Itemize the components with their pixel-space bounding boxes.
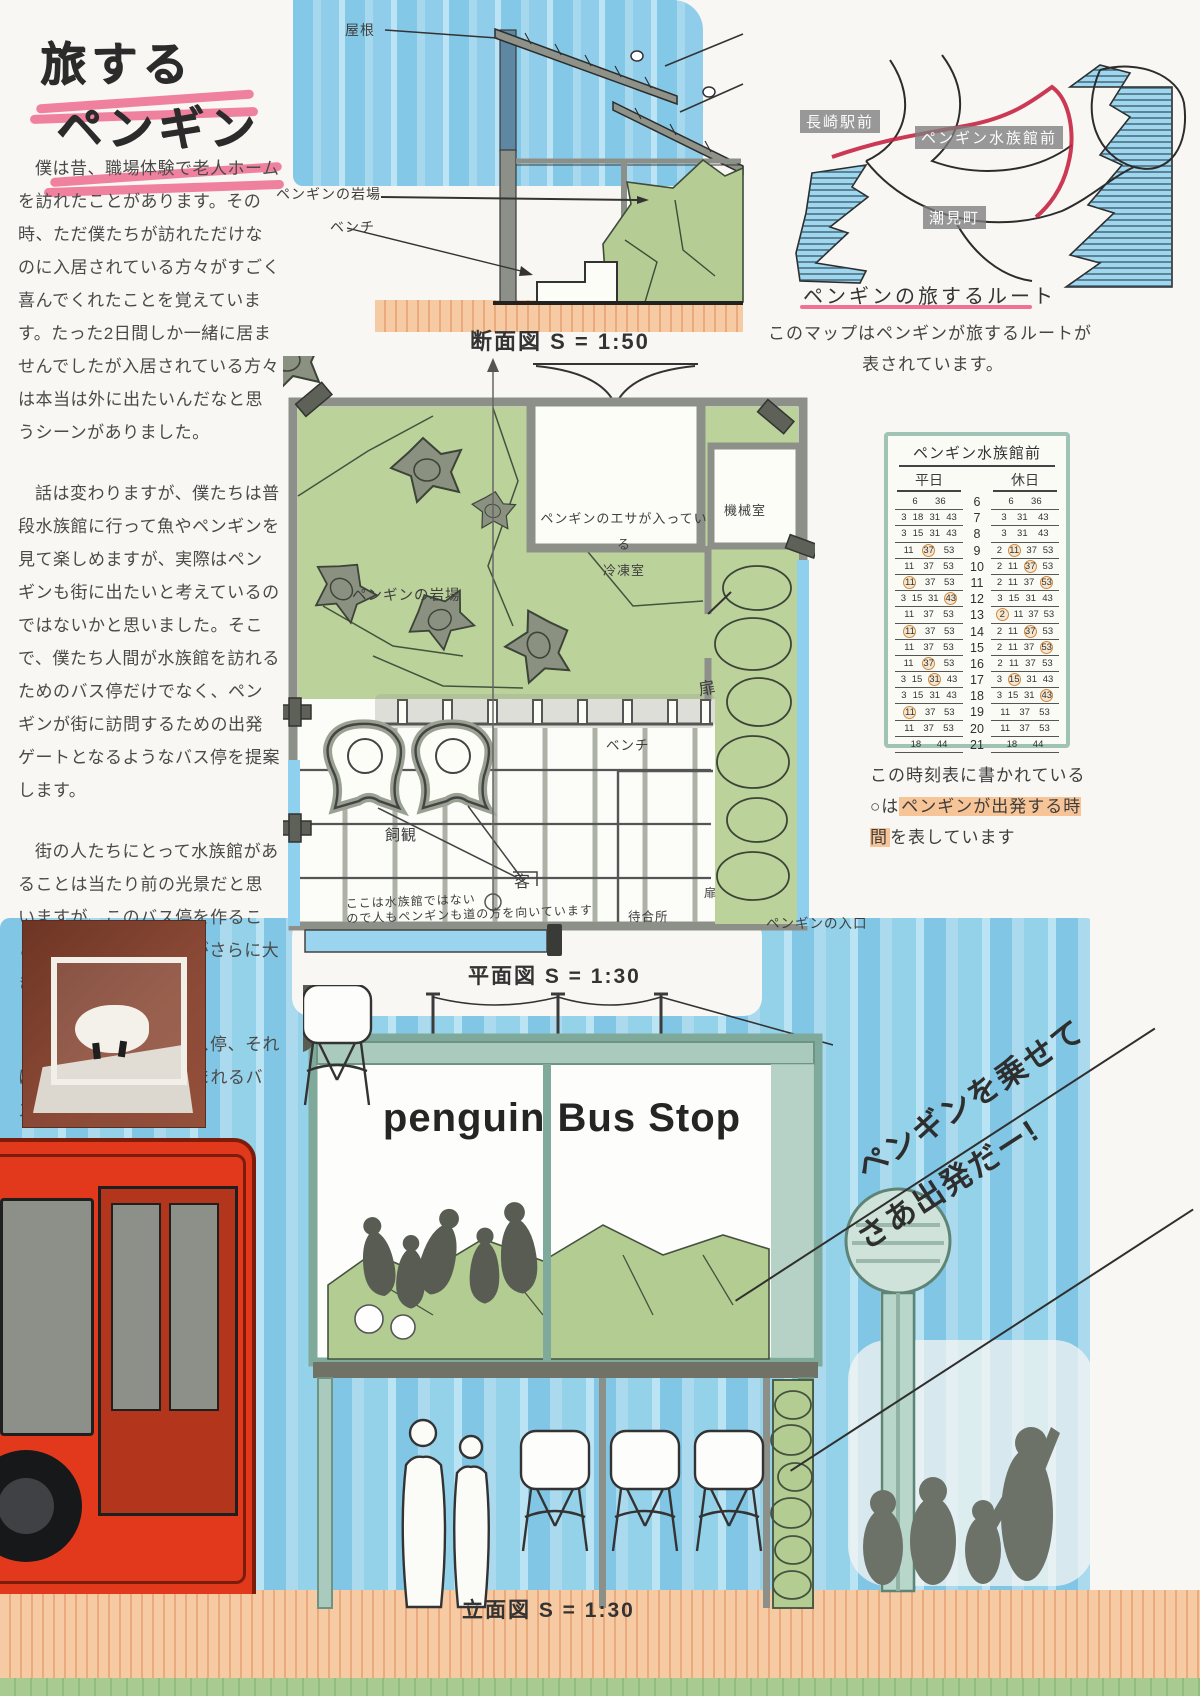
map-description: このマップはペンギンが旅するルートが 表されています。 — [768, 318, 1098, 380]
blue-edge — [797, 560, 809, 926]
poster-title-line2: ペンギン — [56, 92, 260, 158]
elevation-caption: 立面図 S = 1:30 — [462, 1594, 635, 1624]
marker-underline — [800, 305, 1032, 309]
timetable-card: ペンギン水族館前 平日 休日 6366636318314373314331531… — [884, 432, 1070, 748]
double-door-icon — [536, 366, 695, 402]
penguin-family — [845, 1375, 1060, 1590]
poster: 旅する ペンギン 僕は昔、職場体験で老人ホームを訪れたことがあります。その時、た… — [0, 0, 1200, 1696]
timetable-row: 3153143833143 — [893, 526, 1061, 542]
model-photo — [22, 920, 206, 1128]
cable — [433, 997, 661, 1005]
map-desc-line1: このマップはペンギンが旅するルートが — [768, 318, 1098, 349]
timetable-row: 113753152113753 — [893, 640, 1061, 656]
section-caption: 断面図 S = 1:50 — [470, 324, 650, 356]
plan-waiting-label: 待合所 — [628, 906, 669, 925]
pool-strip — [305, 930, 547, 952]
timetable-note-post: を表しています — [890, 828, 1016, 847]
plan-rock-label: ペンギンの岩場 — [352, 584, 461, 605]
plan-keeper-label: 飼観 — [385, 824, 417, 845]
frame-right-panel — [771, 1064, 814, 1358]
timetable-row: 113753142113753 — [893, 624, 1061, 640]
plan-guest-label: 客 — [514, 868, 531, 892]
timetable-row: 3153143173153143 — [893, 672, 1061, 688]
elevation-drawing — [303, 985, 833, 1630]
red-bus-drawing — [0, 1128, 260, 1594]
timetable-row: 3153143123153143 — [893, 591, 1061, 607]
map-chip-town: 潮見町 — [923, 206, 986, 229]
timetable-row: 11375320113753 — [893, 721, 1061, 737]
bus-door-window — [169, 1203, 219, 1411]
section-bench-label: ベンチ — [330, 217, 375, 237]
timetable-row: 113753162113753 — [893, 656, 1061, 672]
plan-bench-label: ベンチ — [606, 734, 650, 754]
timetable-row: 113753102113753 — [893, 559, 1061, 575]
model-rock — [75, 1005, 149, 1053]
floor-plan — [283, 356, 815, 956]
plan-entrance-label: ペンギンの入口 — [766, 912, 868, 932]
blue-edge — [288, 760, 300, 926]
penguin-icon — [863, 1427, 1060, 1585]
floor-beam — [313, 1362, 818, 1378]
bus-window — [0, 1198, 94, 1436]
bus-wheel-hub — [0, 1478, 54, 1534]
white-rock — [355, 1305, 383, 1333]
human-silhouette — [403, 1420, 489, 1607]
timetable-note: この時刻表に書かれている○はペンギンが出発する時間を表しています — [870, 760, 1092, 853]
poster-title-line1: 旅する — [40, 28, 193, 94]
timetable-row: 11375319113753 — [893, 704, 1061, 720]
plan-freezer-label-line2: 冷凍室 — [540, 558, 708, 584]
section-drawing — [285, 0, 745, 345]
frame-top-band — [317, 1042, 814, 1064]
frame-leg — [318, 1378, 332, 1608]
bus-stop-sign-text: penguin Bus Stop — [376, 1096, 748, 1141]
machine-room — [711, 446, 799, 546]
rock-column — [771, 1380, 813, 1608]
bus-door-window — [111, 1203, 161, 1411]
plan-freezer-label-line1: ペンギンのエサが入っている — [540, 506, 708, 558]
section-rock-label: ペンギンの岩場 — [276, 184, 381, 204]
plan-freezer-label: ペンギンのエサが入っている 冷凍室 — [540, 506, 708, 584]
timetable-row: 1844211844 — [893, 737, 1061, 753]
white-rock — [391, 1315, 415, 1339]
plan-machine-label: 機械室 — [724, 500, 766, 519]
timetable-row: 6366636 — [893, 494, 1061, 510]
bus-door — [98, 1186, 238, 1516]
map-chip-station: 長崎駅前 — [800, 110, 880, 133]
map-desc-line2: 表されています。 — [768, 349, 1098, 380]
timetable-row: 113753132113753 — [893, 607, 1061, 623]
map-chip-aquarium: ペンギン水族館前 — [915, 126, 1063, 149]
intro-paragraph-1: 僕は昔、職場体験で老人ホームを訪れたことがあります。その時、ただ僕たちが訪れただ… — [18, 152, 280, 449]
plan-door-small-label: 扉 — [704, 884, 717, 901]
timetable-row: 3153143183153143 — [893, 688, 1061, 704]
route-map — [770, 25, 1195, 290]
timetable-row: 11375392113753 — [893, 543, 1061, 559]
timetable-rows: 6366636318314373314331531438331431137539… — [893, 494, 1061, 753]
section-roof-label: 屋根 — [345, 20, 375, 40]
pulley-icon — [631, 51, 643, 61]
bench-steps — [537, 262, 617, 302]
pulley-icon — [703, 87, 715, 97]
intro-paragraph-2: 話は変わりますが、僕たちは普段水族館に行って魚やペンギンを見て楽しめますが、実際… — [18, 477, 280, 807]
timetable-header: 平日 休日 — [893, 470, 1061, 492]
timetable-row: 113753112113753 — [893, 575, 1061, 591]
timetable-weekday-header: 平日 — [897, 470, 961, 492]
timetable-row: 3183143733143 — [893, 510, 1061, 526]
timetable-holiday-header: 休日 — [993, 470, 1057, 492]
bottom-green-strip — [0, 1678, 1200, 1696]
timetable-title: ペンギン水族館前 — [899, 442, 1055, 467]
